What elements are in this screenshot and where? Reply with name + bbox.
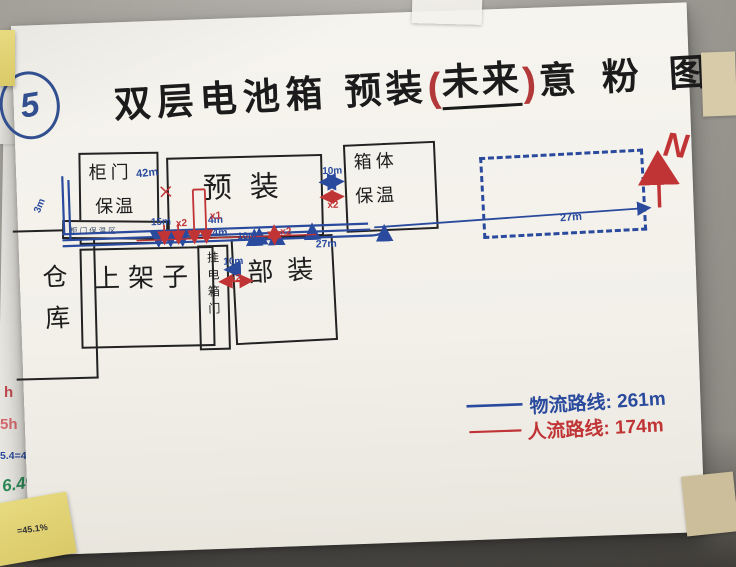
title-part-1: 双层电池箱: [112, 63, 330, 129]
measure-10m-corridor: 10m: [322, 166, 342, 177]
room-box-insulation-line1: 箱体: [353, 145, 434, 174]
title-part-3: 意: [537, 49, 577, 105]
room-preassembly: 预装: [166, 154, 324, 240]
page-title: 双层电池箱 预装 ( 未来 ) 意 粉 图: [112, 38, 707, 129]
room-racking: 上架子: [79, 246, 215, 349]
room-hang-box-door-label: 挂电箱门: [204, 251, 224, 348]
measure-42m: 42m: [136, 167, 159, 180]
legend-people-flow: 人流路线: 174m: [527, 410, 664, 444]
room-box-insulation-line2: 保温: [355, 179, 436, 208]
title-paren-close: ): [521, 60, 537, 106]
measure-3m: 3m: [33, 197, 48, 214]
sticky-note-top-left: [0, 30, 15, 86]
title-part-4: 粉: [600, 45, 640, 101]
room-cabinet-label-line2: 保温: [95, 192, 157, 219]
side-note-2: 5h: [0, 416, 18, 433]
measure-4m-b: 4m: [212, 228, 228, 239]
room-subassembly: 部装: [231, 234, 338, 345]
count-x1: x1: [210, 211, 222, 222]
room-subassembly-label: 部装: [247, 253, 328, 287]
room-box-insulation: 箱体 保温: [343, 141, 439, 233]
measure-27m-b: 27m: [560, 212, 583, 225]
title-highlight: 未来: [440, 48, 523, 110]
count-x2-door: x2: [230, 274, 241, 284]
tape-top: [412, 0, 483, 25]
sticky-note-text: =45.1%: [16, 522, 48, 536]
measure-27m-a: 27m: [316, 239, 337, 250]
north-label: N: [661, 125, 690, 167]
measure-10m-door: 10m: [223, 257, 243, 268]
count-x2-corridor: x2: [327, 201, 338, 211]
title-paren-open: (: [426, 65, 442, 111]
side-note-1: h: [4, 384, 13, 401]
tape-right: [701, 51, 736, 116]
room-racking-label: 上架子: [94, 261, 197, 293]
title-part-2: 预装: [343, 57, 428, 115]
page-number: 5: [17, 85, 42, 126]
count-x2-bundle: x2: [176, 219, 187, 229]
count-x2-subassembly: x2: [280, 227, 291, 237]
room-preassembly-label: 预装: [202, 171, 297, 205]
paper-sheet: 5 双层电池箱 预装 ( 未来 ) 意 粉 图 仓库 柜门 保温 柜门保温区 预…: [11, 2, 705, 555]
measure-10m-subassembly: 10m: [237, 232, 256, 242]
tape-bottom-right: [681, 471, 736, 536]
sticky-note-bottom-left: =45.1%: [0, 492, 77, 567]
future-area-dashed-box: [479, 149, 647, 239]
measure-15m: 15m: [151, 217, 171, 228]
room-warehouse-label: 仓库: [34, 263, 75, 347]
photo-backdrop: h 5h 5.4=46.5h 6.4% 5 双层电池箱 预装 ( 未来 ) 意 …: [0, 0, 736, 567]
